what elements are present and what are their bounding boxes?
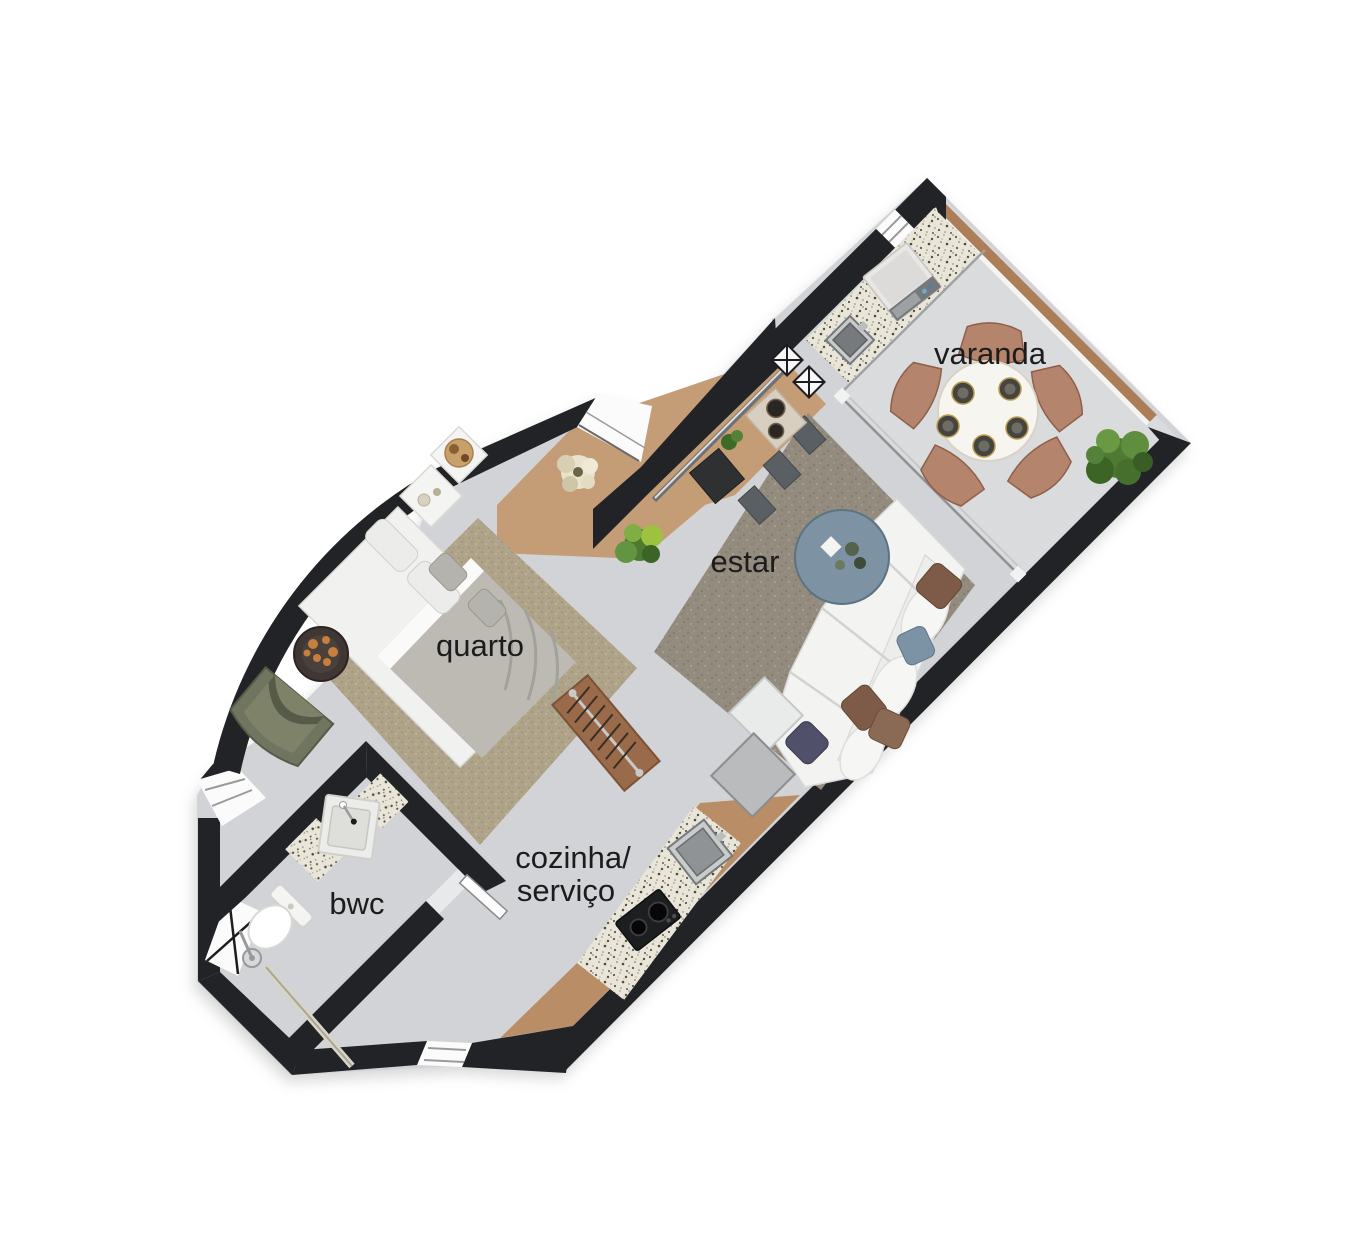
svg-text:bwc: bwc (329, 886, 384, 921)
svg-text:cozinha/: cozinha/ (515, 840, 631, 875)
svg-text:serviço: serviço (517, 873, 615, 908)
svg-text:quarto: quarto (436, 628, 524, 663)
svg-text:estar: estar (711, 544, 780, 579)
svg-text:varanda: varanda (934, 336, 1047, 371)
